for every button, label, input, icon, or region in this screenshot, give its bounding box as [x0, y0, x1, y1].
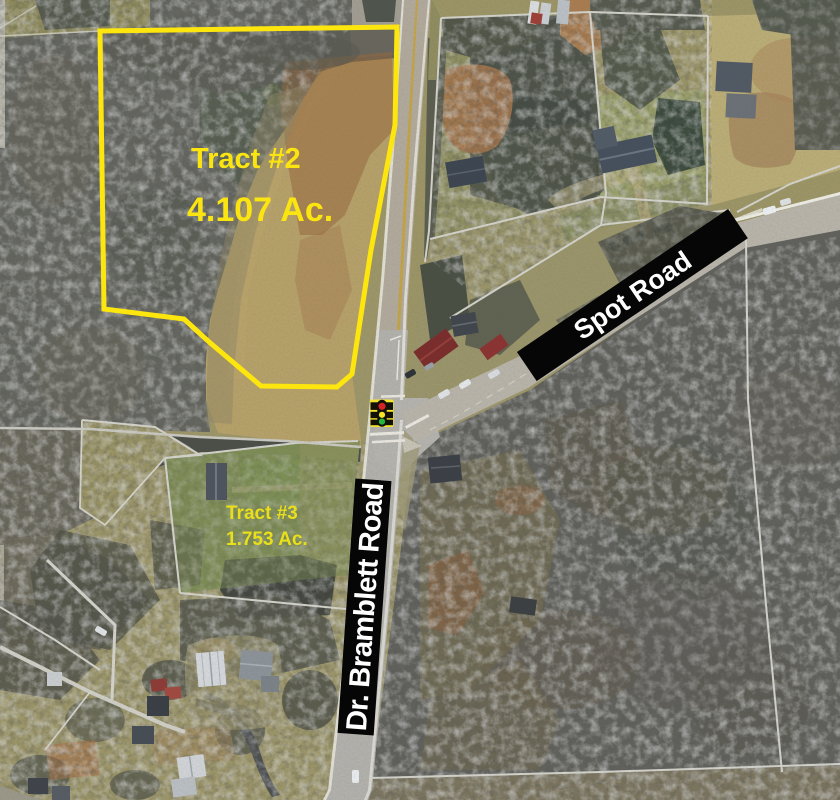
- svg-text:Tract #3: Tract #3: [226, 503, 298, 524]
- svg-text:Tract #2: Tract #2: [191, 143, 301, 175]
- svg-text:1.753 Ac.: 1.753 Ac.: [226, 529, 308, 550]
- svg-text:4.107 Ac.: 4.107 Ac.: [187, 191, 333, 229]
